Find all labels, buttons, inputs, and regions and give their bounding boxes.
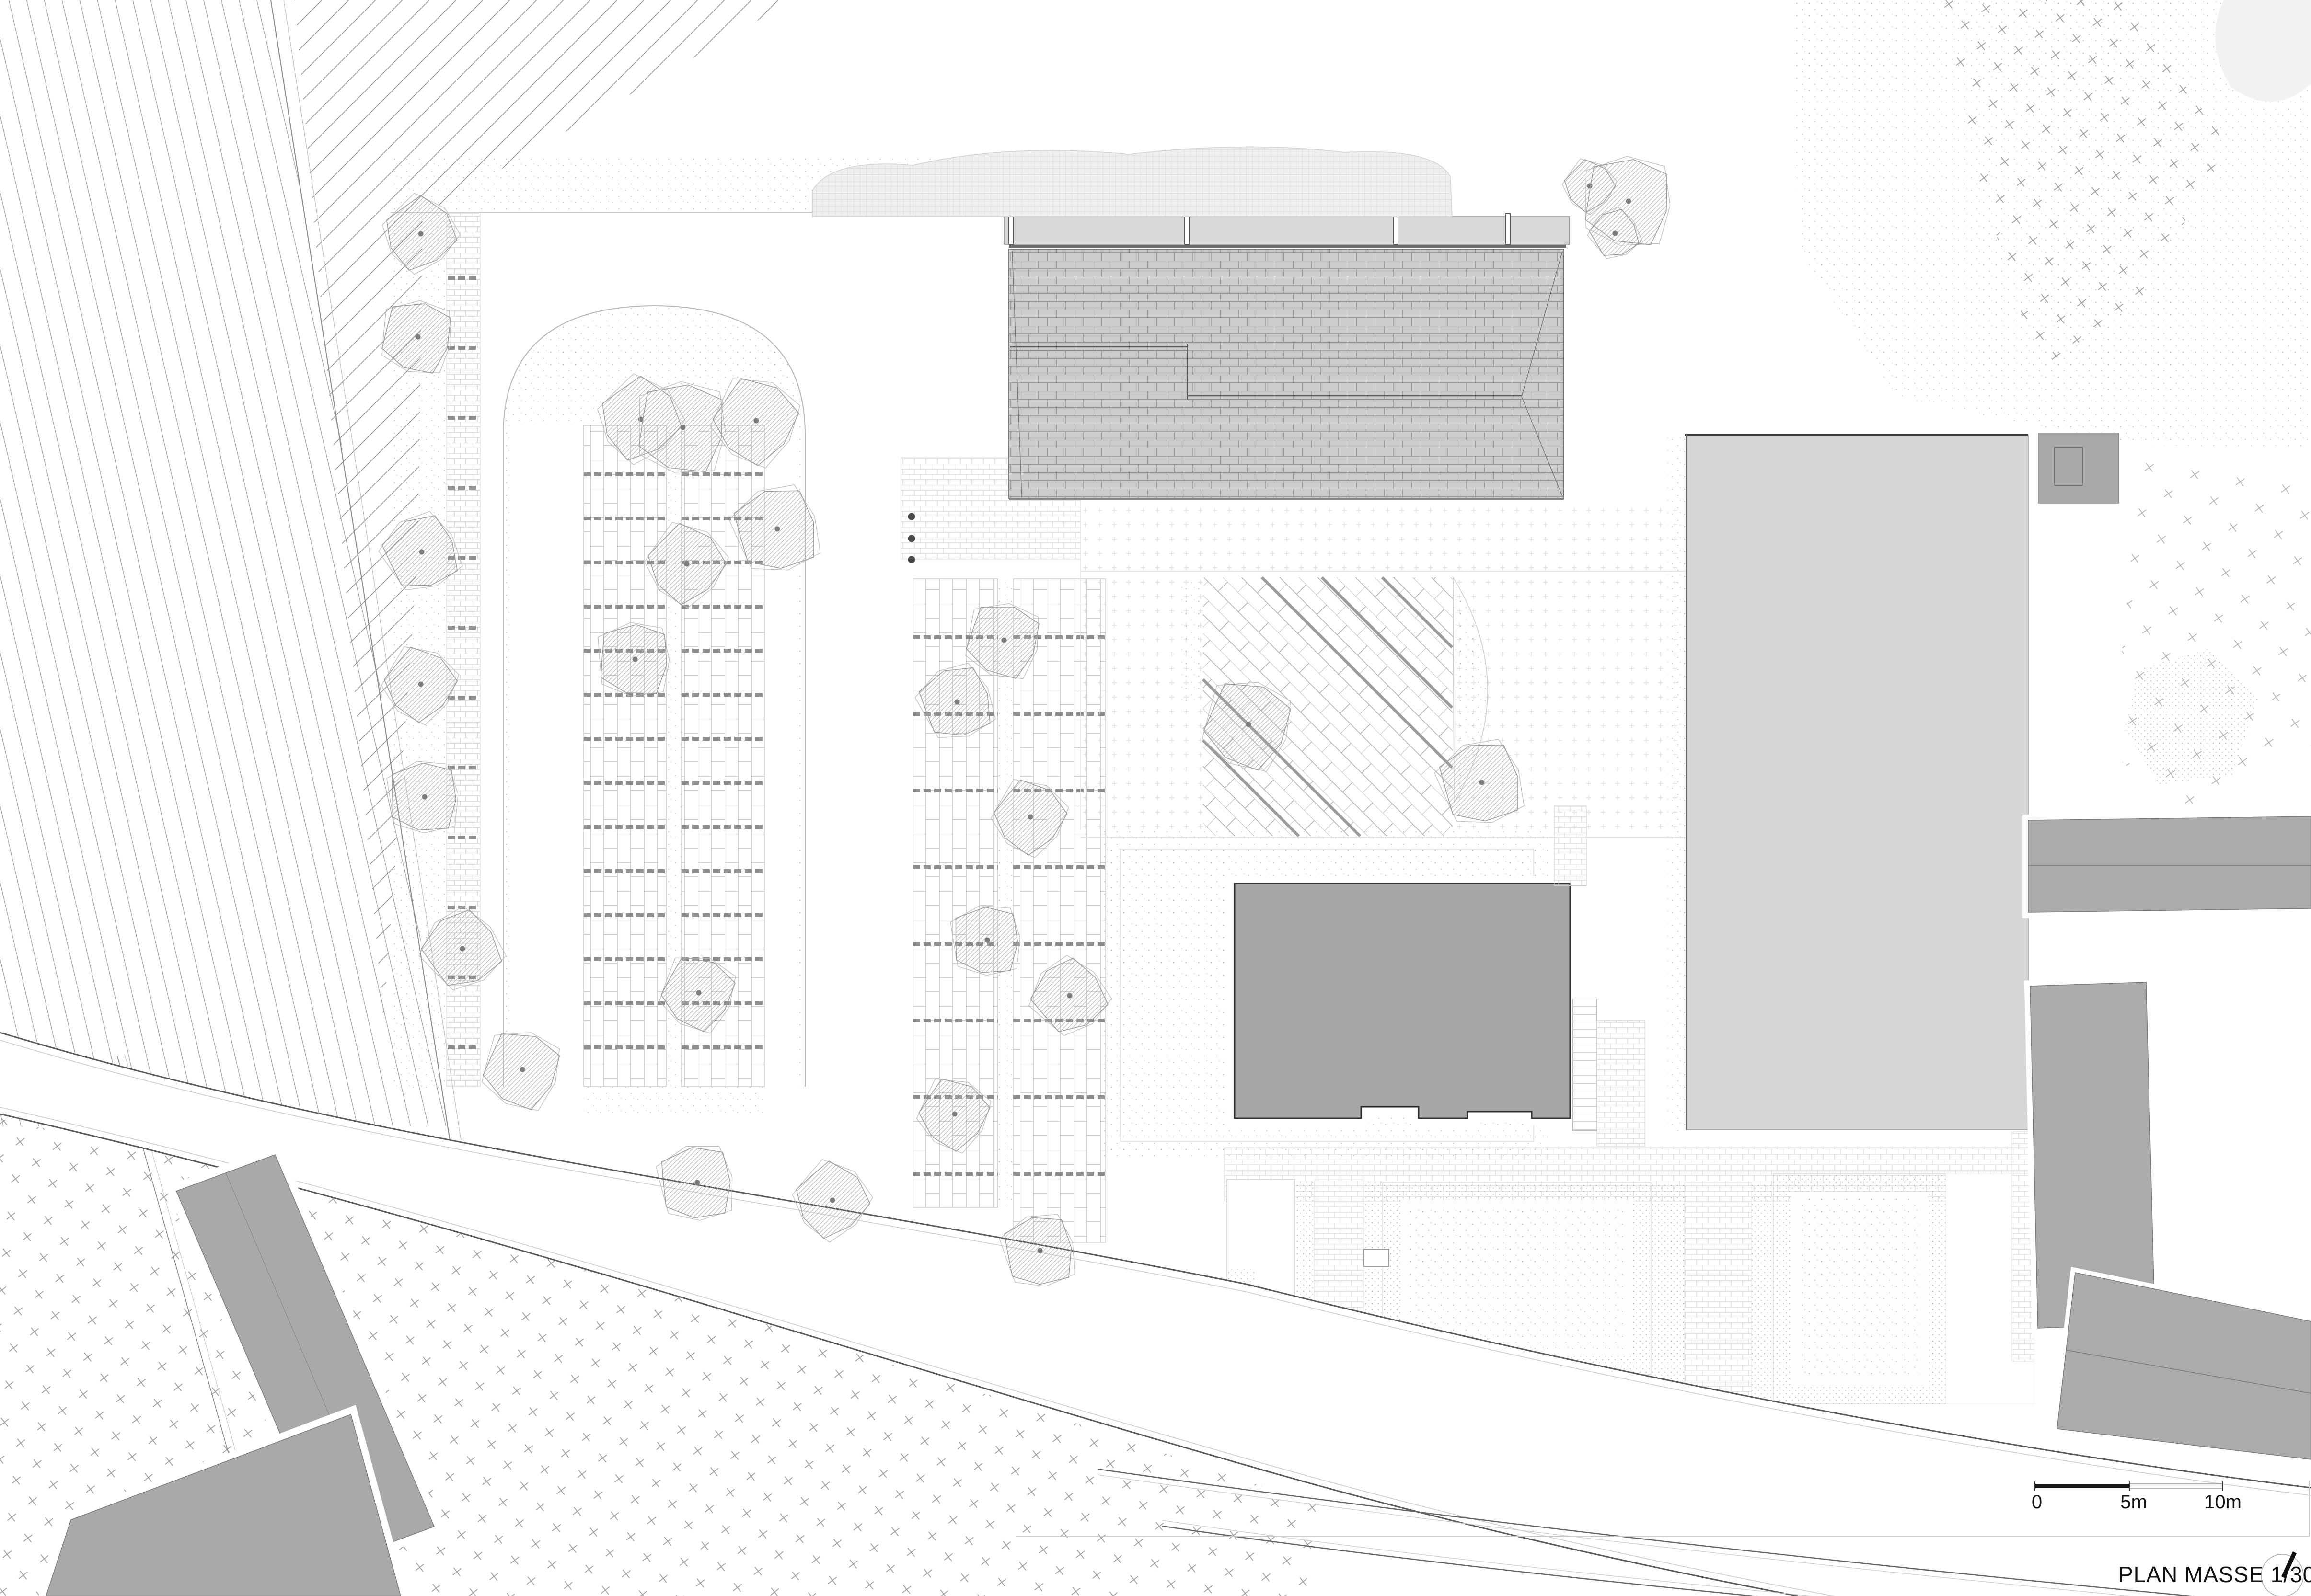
- tree-trunk: [1613, 231, 1618, 236]
- garden-bottom-stipple: [584, 1087, 764, 1116]
- tree-trunk: [1028, 815, 1033, 820]
- tree-trunk: [1067, 993, 1073, 999]
- tree-trunk: [1002, 638, 1007, 643]
- tree-trunk: [952, 1112, 958, 1117]
- brick-strip: [1554, 805, 1586, 886]
- tree-trunk: [416, 334, 421, 340]
- stipple-strip-right: [1666, 434, 1687, 1131]
- tree-trunk: [633, 657, 638, 662]
- tree-trunk: [418, 682, 424, 687]
- building-east-bar: [2028, 816, 2311, 912]
- tree-trunk: [830, 1198, 835, 1203]
- fence-post: [1184, 214, 1189, 244]
- tree-trunk: [418, 231, 424, 237]
- tree-trunk: [985, 938, 990, 943]
- site-layers: [0, 0, 2311, 1596]
- annex-roof: [2038, 434, 2119, 503]
- tree-trunk: [520, 1067, 525, 1072]
- garden-bed: [584, 425, 666, 1087]
- tree-trunk: [754, 418, 759, 424]
- courtyard-b-garden: [1408, 1207, 1626, 1349]
- hall-eave-band: [1004, 217, 1570, 244]
- scalebar-label-0: 0: [2032, 1492, 2042, 1513]
- tree-trunk: [681, 425, 686, 430]
- building-central: [1235, 884, 1570, 1118]
- brick-strip: [1597, 1021, 1645, 1146]
- building-right-large: [1686, 435, 2028, 1130]
- fence-post: [1505, 214, 1510, 244]
- fence-post: [1009, 214, 1014, 244]
- tree-trunk: [419, 550, 425, 555]
- bollard: [908, 556, 915, 563]
- bollard: [908, 535, 915, 542]
- fence-post: [1393, 214, 1398, 244]
- tree-trunk: [1479, 780, 1485, 785]
- scalebar-label-10m: 10m: [2204, 1492, 2242, 1513]
- tree-trunk: [684, 562, 690, 567]
- exterior-steps: [1573, 999, 1597, 1131]
- site-plan-svg: 0 5m 10m PLAN MASSE 1/300: [0, 0, 2311, 1596]
- tree-trunk: [775, 527, 780, 532]
- scalebar-black-segment: [2035, 1484, 2129, 1488]
- scalebar-white-segment: [2129, 1484, 2222, 1488]
- tree-trunk: [460, 946, 465, 952]
- tree-trunk: [1246, 722, 1251, 727]
- tree-trunk: [1626, 199, 1631, 204]
- courtyard-c-garden: [1798, 1199, 1921, 1379]
- planter-box: [1364, 1249, 1389, 1266]
- page-title: PLAN MASSE 1/300: [2118, 1562, 2311, 1587]
- tree-trunk: [1038, 1248, 1043, 1253]
- tree-trunk: [696, 990, 702, 996]
- stipple-strip: [1752, 1183, 1773, 1408]
- tree-trunk: [695, 1180, 700, 1185]
- stipple-strip: [1651, 1183, 1685, 1384]
- tree-trunk: [955, 700, 960, 705]
- hall-roof-tiles: [1009, 249, 1564, 498]
- brick-strip: [1685, 1183, 1752, 1408]
- scalebar-label-5m: 5m: [2120, 1492, 2147, 1513]
- tree-trunk: [422, 794, 428, 800]
- bollard: [908, 513, 915, 520]
- site-plan-sheet: 0 5m 10m PLAN MASSE 1/300: [0, 0, 2311, 1596]
